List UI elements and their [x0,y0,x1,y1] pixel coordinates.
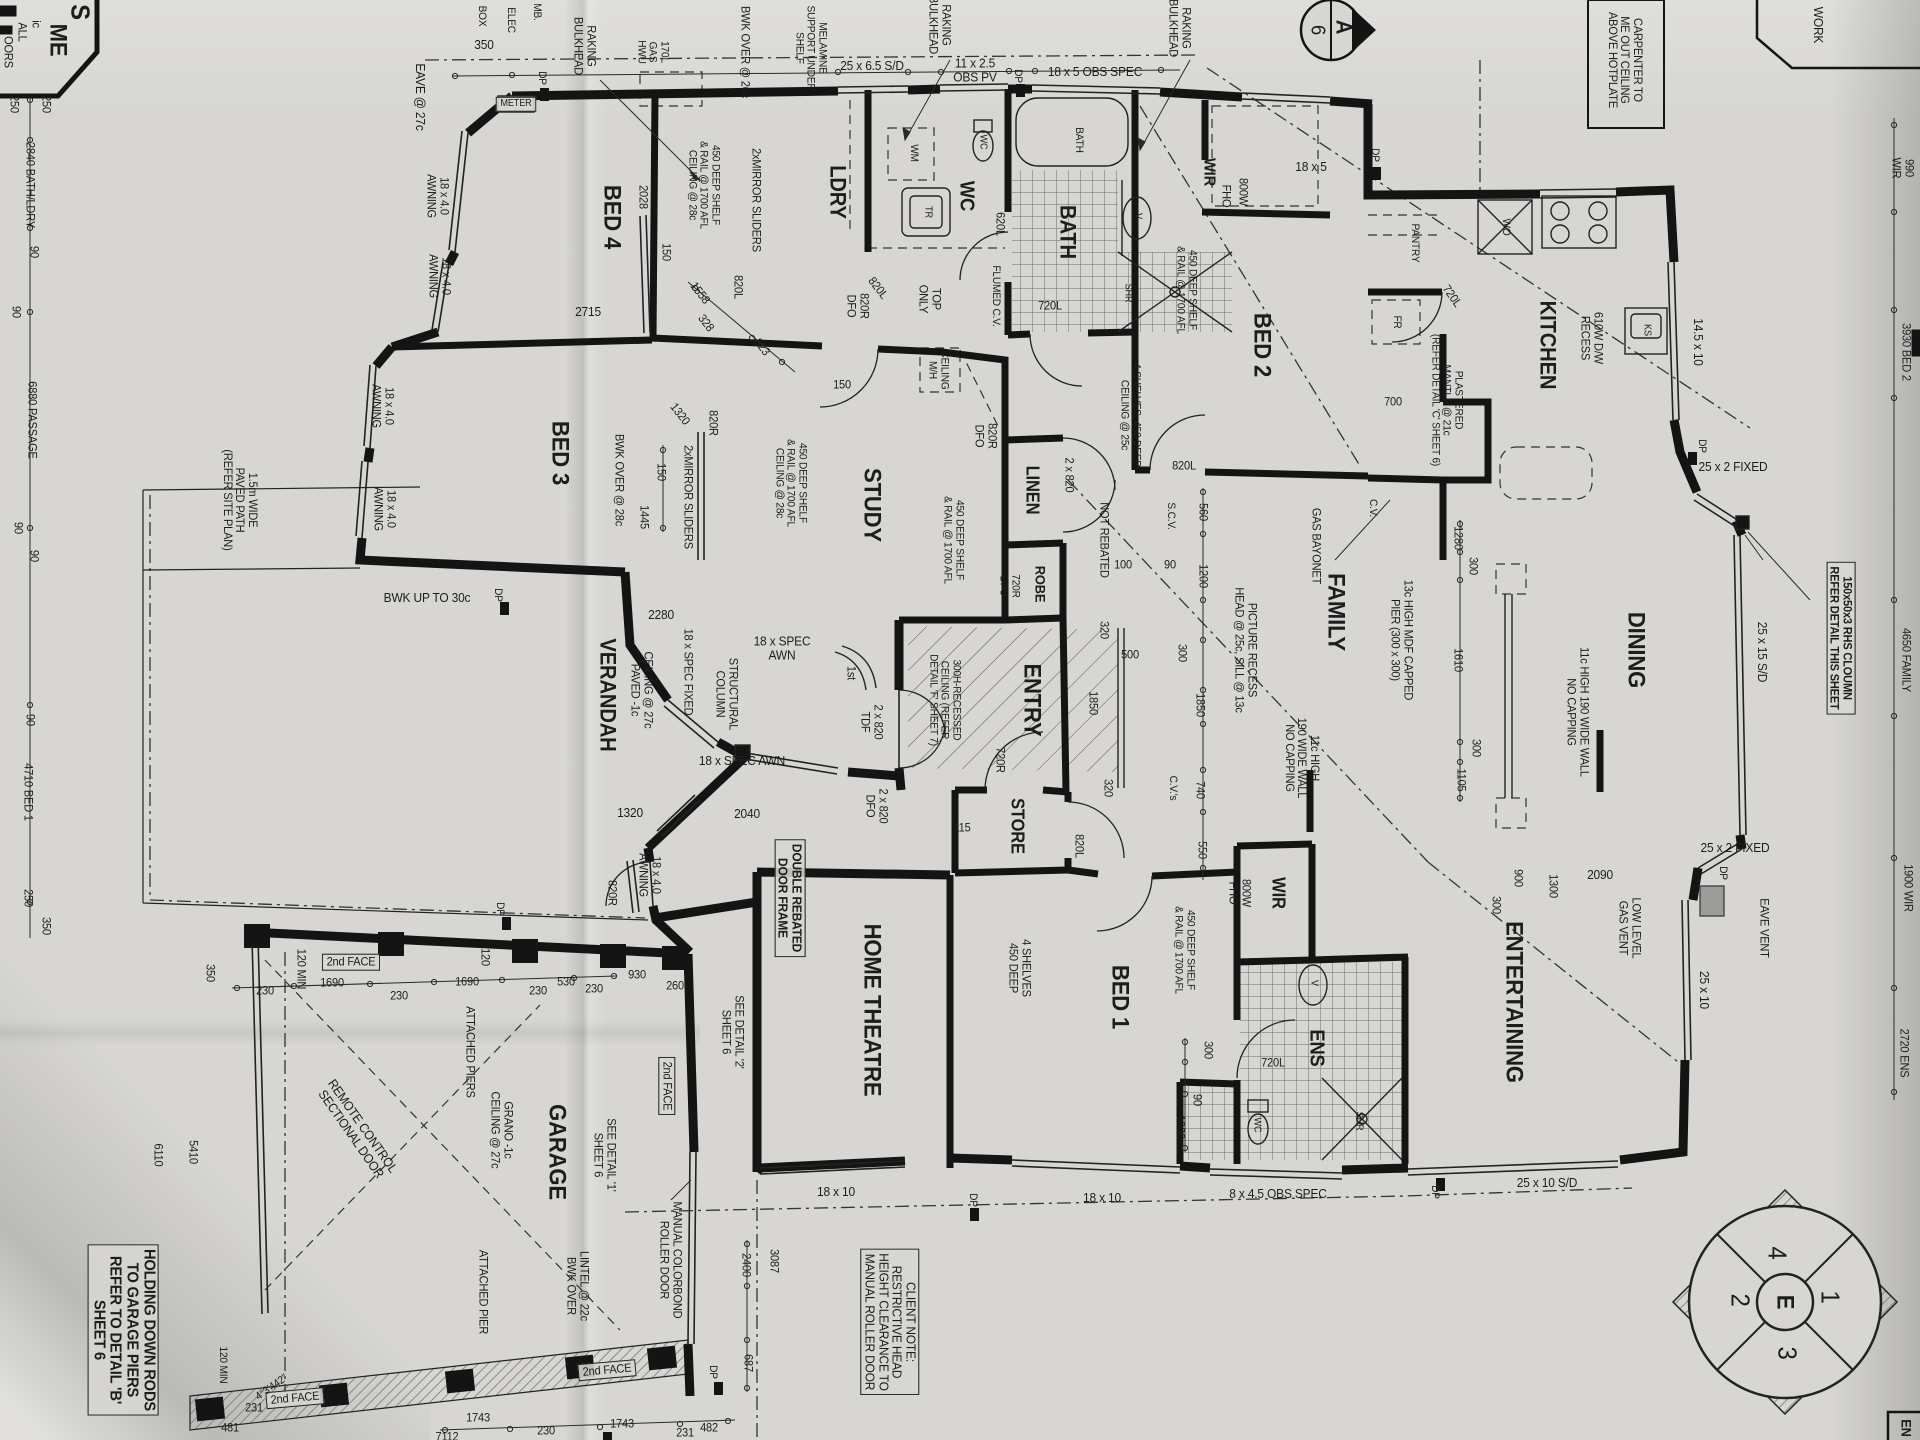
dim: 1690 [320,977,344,990]
dim: 150 [660,243,673,261]
room-label-bed2: BED 2 [1249,313,1274,377]
note: C.V.'s [1166,776,1178,801]
dim: 300 [1470,739,1483,757]
downpipe-label: DP [706,1365,718,1379]
dim: 482 [700,1422,718,1435]
note: 2xMIRROR SLIDERS [750,148,763,252]
window-label: 11 x 2.5 OBS PV [953,56,996,83]
fixture-label: FR [1390,315,1402,328]
note: 450 DEEP SHELF & RAIL @ 1700 AFL [1172,906,1195,994]
room-label-wir: WIR [1200,158,1217,186]
sheet-corner-fragment: ALL [16,22,29,41]
sheet-corner-fragment: EN [1899,1419,1914,1437]
room-label-bed3: BED 3 [547,421,572,485]
window-label: 25 x 6.5 S/D [840,59,904,73]
dim: 1610 [1452,648,1465,672]
dim: 100 [1114,559,1132,572]
dim: 350 [474,38,493,52]
note: NOT REBATED [1098,502,1111,577]
dim: 300 [1176,644,1189,662]
window-label: 18 x SPEC AWN [754,634,811,661]
dim: 300 [1467,557,1480,575]
door-label: 720R [994,747,1007,773]
note: MB. [530,3,542,20]
dim: 500 [1121,649,1139,662]
dim: 3087 [768,1249,781,1273]
note: FHO [1220,185,1233,208]
note: SEE DETAIL '1' SHEET 6 [592,1118,617,1191]
dim: 700 [1384,396,1402,409]
dim: 230 [529,985,547,998]
dim: 7112 [435,1431,458,1440]
window-label: 18 x 4.0 AWNING [425,174,450,218]
dim: 90 [10,306,23,318]
door-label: 820R [606,880,619,906]
dim: 4650 FAMILY [1900,628,1913,692]
note: 800W [1237,178,1250,206]
dim: 930 [628,969,646,982]
dim: 6110 [152,1143,165,1166]
dim: 90 [1191,1094,1204,1106]
downpipe-label: DP [1368,148,1380,162]
note: PICTURE RECESS HEAD @ 25c, SILL @ 13c [1233,587,1258,712]
room-label-entry: ENTRY [1019,663,1044,736]
window-label: 25 x 15 S/D [1755,622,1769,682]
dim: 2040 [734,807,760,821]
dim: 1105 [1455,768,1468,791]
note: 4 SHELVES 450 DEEP [1007,939,1032,997]
note: RAKING BULKHEAD [572,17,597,75]
window-label: 14.5 x 10 [1691,318,1705,366]
dim: 1743 [610,1418,634,1431]
compass-quadrant: 2 [1726,1293,1753,1306]
sheet-corner-fragment: OORS [2,36,15,68]
note: EAVE @ 27c [413,63,427,130]
fixture-label: WM [907,144,919,162]
fixture-label: V [1132,213,1143,219]
room-label-study: STUDY [859,468,884,542]
room-label-ens: ENS [1306,1029,1327,1066]
fixture-label: SHR [1122,284,1133,303]
dim: 120 MIN [216,1347,228,1384]
door-label: 720L [1261,1057,1285,1070]
dim: 3930 BED 2 [1900,323,1913,381]
dim: 740 [1194,781,1207,799]
note: ATTACHED PIERS [464,1006,477,1097]
dim: 2280 [648,608,674,622]
room-label-wc: WC [956,181,977,211]
dim: 90 [28,550,41,562]
dim: 320 [1098,621,1111,639]
note: CEILING @ 27c PAVED -1c [629,652,654,729]
window-label: 18 x 4.0 AWNING [370,384,395,428]
door-label: 820R DFO [973,423,998,449]
note: 610W D/W RECESS [1579,312,1604,364]
note: PLASTERED MANTLE @ 21c (REFER DETAIL 'C'… [1429,334,1464,466]
dim: 300 [1490,896,1503,914]
dim: 2715 [575,305,601,319]
note: MELAMINE SUPPORT UNDER SHELF [793,6,828,91]
dim: 250 [40,95,53,113]
dim: 90 [24,714,37,726]
dim: 260 [666,980,684,993]
window-label: 18 x SPEC FIXED [682,629,695,716]
fixture-label: SHR [1353,1112,1364,1131]
fixture-label: WC [1251,1118,1262,1133]
window-label: 18 x SPEC AWN [699,754,785,768]
dim: 350 [40,917,53,935]
verandah-outline [143,487,648,920]
room-label-wir2: WIR [1269,877,1288,909]
note-box: 2nd FACE [659,1057,676,1115]
dim: 5410 [187,1140,200,1164]
dim: 1000 [1174,1115,1187,1139]
door-label: 720R DFO [997,574,1020,597]
fixture-label: WC [977,135,988,150]
dim: 6880 PASSAGE [26,381,39,458]
floor-plan-canvas: SMEicALLOORS2502502840 BATH/LDRY90906880… [0,0,1920,1440]
note: 11c HIGH 190 WIDE WALL NO CAPPING [1565,647,1590,777]
window-label: 18 x 10 [817,1185,855,1199]
room-label-kitchen: KITCHEN [1536,301,1559,390]
note: 2xMIRROR SLIDERS [682,445,695,549]
note: BWK UP TO 30c [384,591,471,605]
note-box-client-note: CLIENT NOTE: RESTRICTIVE HEAD HEIGHT CLE… [861,1249,920,1396]
dim: 530 [557,976,575,989]
door-label: 820L [1073,834,1086,858]
note: 11c HIGH 190 WIDE WALL NO CAPPING [1283,718,1321,799]
room-label-store: STORE [1008,798,1027,854]
compass-quadrant: 4 [1763,1246,1790,1259]
fixture-label: TR [922,206,933,218]
downpipe-label: DP [1716,866,1728,880]
dim: 150 [833,379,851,392]
note-box: DOUBLE REBATED DOOR FRAME [774,839,805,956]
note: GAS BAYONET [1310,508,1323,584]
dim: 2840 BATH/LDRY [24,142,37,228]
dim: 1320 [617,806,643,820]
sheet-corner-fragment: S [66,4,93,20]
note: C.V. [1366,499,1378,517]
window-label: 18 x 4.0 AWNING [427,254,452,298]
downpipe-label: DP [966,1193,978,1207]
dim: 2400 [740,1253,753,1277]
dim: 2720 ENS [1898,1029,1911,1078]
room-label-family: FAMILY [1323,573,1348,651]
door-label: 2 x 820 TDF [859,705,884,740]
dim: 90 [1164,559,1176,572]
note-box: 2nd FACE [322,954,380,971]
downpipe-label: DP [1428,1185,1440,1199]
note: SEE DETAIL '2' SHEET 6 [720,995,745,1068]
note: 450 DEEP SHELF & RAIL @ 1700 AFL [1174,246,1197,334]
door-label: 820R DFO [845,293,870,319]
dim: 1280 [1452,526,1465,550]
dim: 120 [479,948,492,966]
downpipe-label: DP [1695,439,1707,453]
note: 13c HIGH MDF CAPPED PIER (300 x 300) [1389,580,1414,700]
note-box-holding-down-rods: HOLDING DOWN RODS TO GARAGE PIERS REFER … [87,1244,158,1415]
dim: 560 [1197,503,1210,521]
downpipe-label: DP [491,588,503,602]
door-label: 820L [1172,460,1196,473]
door-label: 2 x 820 DFO [864,789,889,824]
dim: 90 [28,246,41,258]
dim: 230 [537,1425,555,1438]
note: S.C.V. [1164,502,1176,529]
door-label: 2 x 820 [1063,458,1076,493]
note: EAVE VENT [1758,898,1771,957]
note: 1st [845,666,858,680]
downpipe-label: DP [493,902,505,916]
window-label: 18 x 4.0 AWNING [637,853,662,897]
note: LOW LEVEL GAS VENT [1617,898,1642,959]
dim: 120 MIN [295,949,308,989]
sheet-corner-fragment: ic [30,20,43,28]
window-label: 18 x 5 OBS SPEC [1048,65,1142,79]
room-label-bed1: BED 1 [1107,965,1132,1029]
room-label-home-theatre: HOME THEATRE [859,924,884,1097]
dim: 1900 WIR [1902,864,1915,912]
window-label: 18 x 10 [1083,1191,1121,1205]
note: CEILING M/H [926,350,949,389]
dim: 250 [22,889,35,907]
sheet-corner-fragment: WORK [1811,7,1825,43]
door-label: 620L [994,212,1007,236]
dim: 687 [742,1354,755,1372]
dim: 231 [676,1427,694,1440]
dim: 1300 [1547,874,1560,898]
note: RAKING BULKHEAD [1167,0,1192,57]
dim: 2028 [637,185,650,209]
dim: 900 [1512,869,1525,887]
note: BOX [475,6,487,27]
room-label-entertaining: ENTERTAINING [1501,921,1526,1083]
downpipe-label: DP [1011,69,1023,83]
room-label-ldry: LDRY [826,165,849,219]
room-label-dining: DINING [1623,612,1648,688]
dim: 150 [655,463,668,481]
note: 4 SHELVES, 450 DEEP CEILING @ 25c [1118,363,1141,467]
door-label: 720L [1038,300,1062,313]
dim: 1850 [1087,691,1100,715]
dim: 350 [204,964,217,982]
dim: 550 [1196,841,1209,859]
note: 800W FHO [1227,879,1252,907]
dim: 1743 [466,1412,490,1425]
sheet-corner-fragment: ME [45,24,70,57]
window-label: 25 x 10 S/D [1517,1176,1577,1190]
dim: 1690 [455,976,479,989]
note: 450 DEEP SHELF & RAIL @ 1700 AFL [941,496,964,584]
room-label-verandah: VERANDAH [596,638,619,751]
fixture-label: KS [1641,324,1652,336]
dim: 300 [1202,1041,1215,1059]
dim: 990 WIR [1890,158,1915,179]
note: 450 DEEP SHELF & RAIL @ 1700 AFL CEILING… [686,141,721,229]
fixture-label: WO [1499,218,1511,235]
room-label-bed4: BED 4 [599,185,624,249]
note: 300H-RECESSED CEILING (REFER DETAIL 'F' … [927,654,962,746]
window-label: 25 x 2 FIXED [1699,460,1768,474]
dim: 481 [221,1422,239,1435]
note: LINTEL @ 22c BWK OVER [565,1251,590,1321]
window-label: 18 x 5 [1295,160,1326,174]
window-label: 8 x 4.5 OBS SPEC [1229,1187,1326,1201]
fixture-label: V [1308,980,1319,986]
downpipe-label: DP [535,71,547,85]
note: FLUMED C.V. [989,265,1001,326]
dim: 90 [12,522,25,534]
room-label-robe: ROBE [1033,566,1048,602]
note: TOP ONLY [917,285,942,314]
dim: 230 [256,985,274,998]
note: 1.5m WIDE PAVED PATH (REFER SITE PLAN) [221,449,259,550]
dim: 230 [390,990,408,1003]
dim: 250 [8,95,21,113]
note: ELEC [504,7,516,33]
room-label-bath: BATH [1056,205,1079,259]
section-marker-number: 6 [1307,25,1328,35]
compass-quadrant: 3 [1773,1346,1800,1359]
room-label-pantry: PANTRY [1408,223,1420,262]
dim: 1850 [1194,693,1207,717]
note: MANUAL COLORBOND ROLLER DOOR [658,1202,683,1319]
room-label-linen: LINEN [1023,466,1042,515]
dim: 320 [1102,779,1115,797]
compass-quadrant: 1 [1816,1290,1843,1303]
window-label: 25 x 2 FIXED [1701,841,1770,855]
door-label: 820L [732,275,745,299]
note-box: 150x50x3 RHS CLOUMN REFER DETAIL THIS SH… [1826,562,1855,714]
meter-box-label: METER [496,97,536,112]
note: 170L GAS HWU [635,40,670,64]
wet-area-tiles [190,170,1402,1430]
note: CARPENTER TO ME OUT CEILING ABOVE HOTPLA… [1606,12,1644,108]
dim: 230 [585,983,603,996]
window-label: 25 x 10 [1697,971,1711,1009]
section-marker-letter: A [1332,20,1355,34]
dim: 4710 BED 1 [22,763,35,821]
note: RAKING BULKHEAD [927,0,952,54]
note: BWK OVER @ 26c [739,6,752,98]
door-label: 820R [707,410,720,436]
window-label: 18 x 4.0 AWNING [372,487,397,531]
dim: 2090 [1587,868,1613,882]
note: GRANO -1c CEILING @ 27c [489,1092,514,1169]
note: STRUCTURAL COLUMN [714,658,739,730]
note: ATTACHED PIER [477,1250,490,1334]
note: BWK OVER @ 28c [613,434,626,526]
room-label-garage: GARAGE [544,1104,569,1200]
dim: 115 [953,822,970,835]
dim: 1445 [638,505,651,529]
note: 450 DEEP SHELF & RAIL @ 1700 AFL CEILING… [773,439,808,527]
fixture-label: BATH [1072,127,1084,153]
dim: 1200 [1197,564,1210,588]
dim: 231 [245,1402,263,1415]
compass-center: E [1772,1295,1797,1310]
